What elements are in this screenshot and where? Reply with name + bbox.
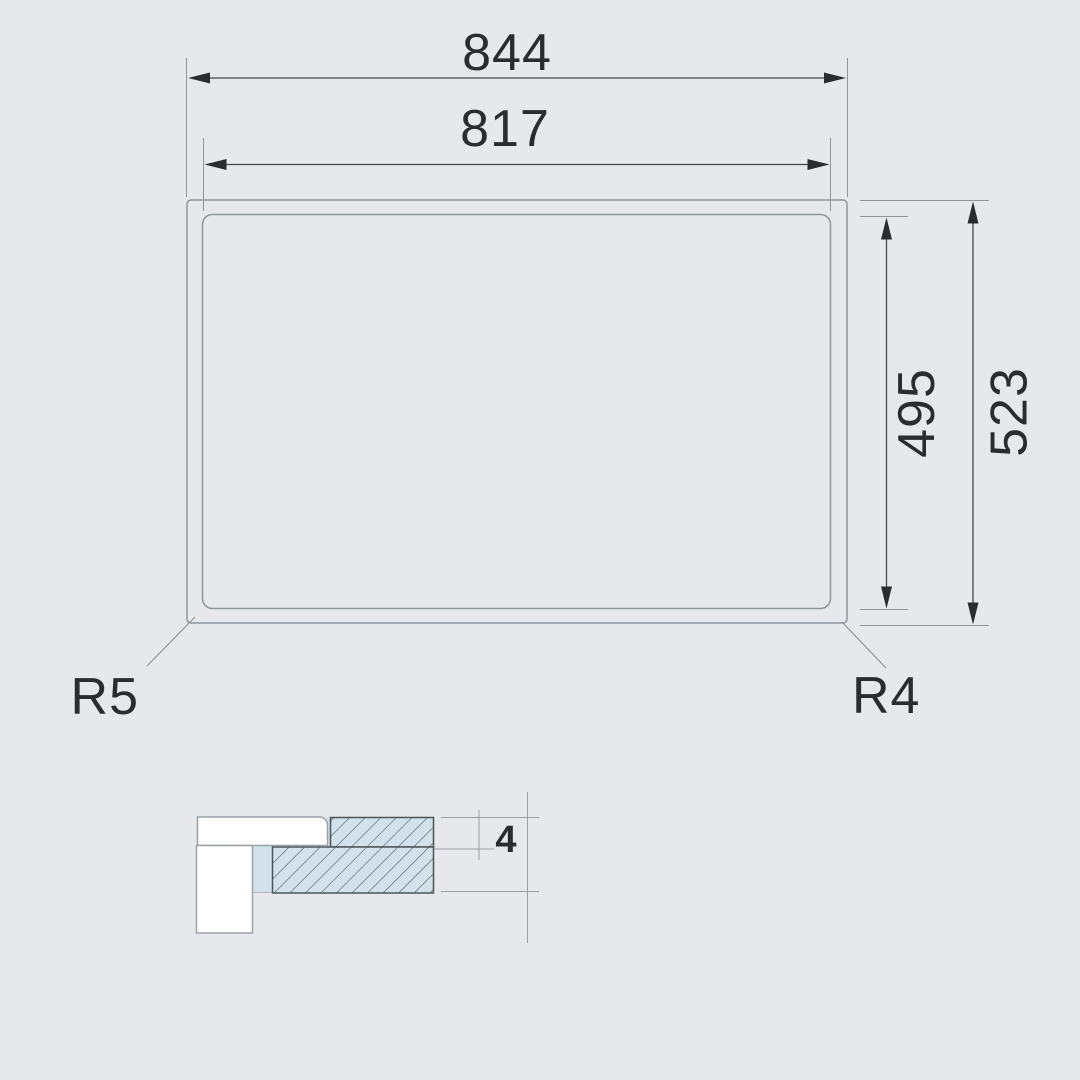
arrow-left-icon	[205, 159, 227, 170]
arrow-up-icon	[881, 218, 892, 240]
section-glass-top-hatched	[331, 818, 434, 848]
radius-callout-bottom-left: R5	[71, 617, 195, 726]
technical-drawing: 844 817 495 523	[0, 0, 1080, 1080]
dimension-inner-width: 817	[204, 100, 831, 211]
outer-rectangle	[187, 200, 847, 623]
drawing-canvas: 844 817 495 523	[0, 0, 1080, 1080]
arrow-left-icon	[188, 73, 210, 84]
arrow-down-icon	[881, 587, 892, 609]
arrow-right-icon	[808, 159, 830, 170]
inner-width-label: 817	[460, 100, 550, 158]
top-view: 844 817 495 523	[71, 24, 1039, 726]
radius-bottom-right-label: R4	[852, 667, 920, 725]
outer-width-label: 844	[462, 24, 552, 82]
radius-callout-bottom-right: R4	[842, 622, 920, 725]
radius-bottom-left-label: R5	[71, 668, 139, 726]
outer-height-label: 523	[981, 367, 1039, 457]
leader-line	[147, 617, 195, 666]
section-body-hatched	[273, 847, 434, 893]
dimension-panel-thickness: 4	[434, 792, 539, 943]
panel-thickness-label: 4	[495, 819, 516, 861]
inner-panel-rectangle	[203, 215, 831, 609]
edge-section-detail: 4	[197, 792, 540, 943]
worktop-leg-profile	[197, 846, 253, 934]
inner-height-label: 495	[888, 368, 946, 458]
section-filler-strip	[253, 846, 273, 893]
arrow-up-icon	[968, 202, 979, 224]
leader-line	[842, 622, 886, 668]
arrow-down-icon	[968, 603, 979, 625]
arrow-right-icon	[824, 73, 846, 84]
worktop-flange-profile	[198, 817, 328, 846]
dimension-inner-height: 495	[860, 217, 946, 610]
